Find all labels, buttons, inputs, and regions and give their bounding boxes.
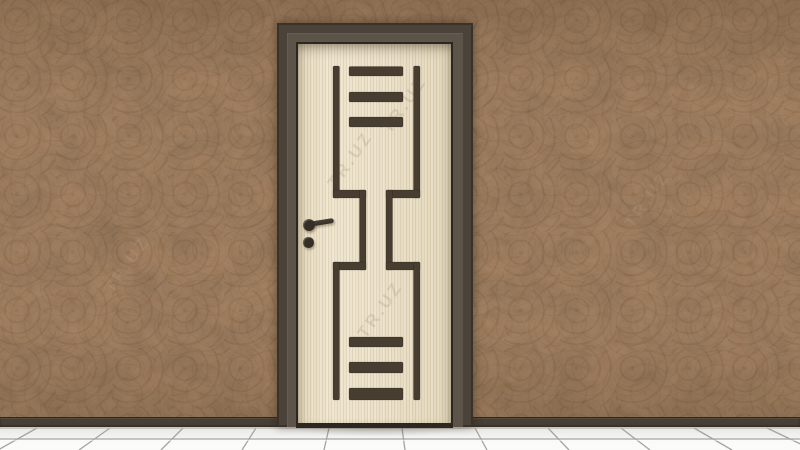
scene: TR.UZ TR.UZ TR.UZ TR.UZ TR.UZ [0,0,800,450]
door-floor-shadow [288,427,468,437]
door-inlay-pattern [298,44,451,423]
door-frame [277,23,473,427]
handle-rosette-icon [303,219,315,231]
keyhole-icon [303,237,314,248]
door-leaf [298,44,451,426]
